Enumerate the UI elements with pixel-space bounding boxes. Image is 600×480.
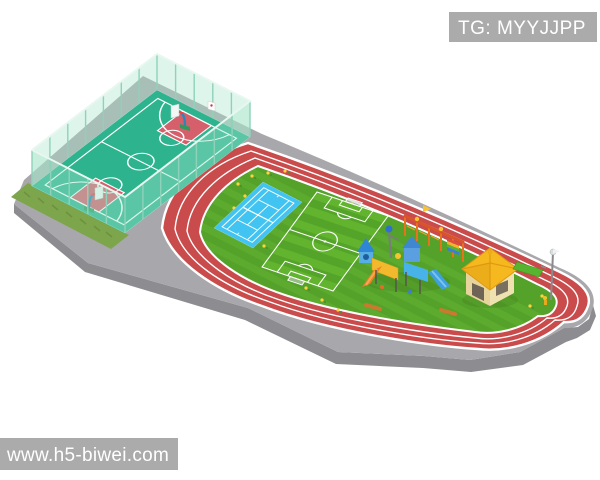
watermark-bottom-text: www.h5-biwei.com	[6, 445, 169, 466]
watermark-bottom: www.h5-biwei.com	[0, 438, 178, 470]
sports-park-render: TG: MYYJJPP www.h5-biwei.com	[0, 0, 600, 480]
watermark-top-text: TG: MYYJJPP	[458, 18, 586, 39]
scene-canvas: TG: MYYJJPP www.h5-biwei.com	[0, 0, 600, 480]
watermark-top: TG: MYYJJPP	[449, 12, 597, 42]
fence-sign	[208, 101, 215, 111]
